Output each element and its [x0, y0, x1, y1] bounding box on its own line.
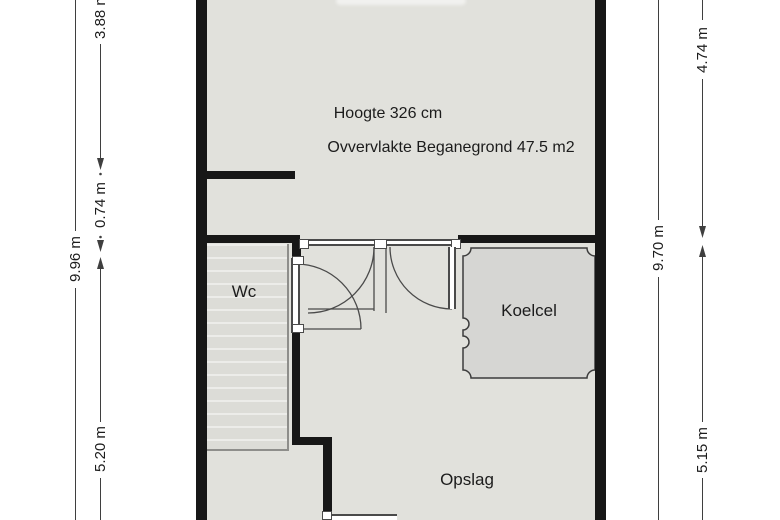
- wc-door-frame: [291, 258, 300, 333]
- wc-door-post-top: [292, 256, 304, 265]
- dimension-label-left-bottom: 5.20 m: [93, 421, 109, 477]
- exterior-wall-right: [595, 0, 606, 520]
- dimension-label-right-bottom: 5.15 m: [695, 422, 711, 478]
- door-post-left: [299, 239, 309, 249]
- interior-wall-main-right: [458, 235, 595, 243]
- floor-plan: Hoogte 326 cm Ovvervlakte Beganegrond 47…: [0, 0, 780, 520]
- door-post-middle: [374, 239, 387, 249]
- main-room-height-note: Hoogte 326 cm: [334, 105, 443, 123]
- wc-label: Wc: [232, 282, 257, 302]
- bottom-door-frame: [331, 514, 397, 520]
- french-doors-swing: [308, 247, 452, 313]
- interior-wall-lower: [323, 445, 332, 515]
- dimension-label-left-middle: 0.74 m: [93, 177, 109, 233]
- wc-door-post-bottom: [292, 324, 304, 333]
- interior-wall-stub: [207, 171, 295, 179]
- interior-wall-main-left: [207, 235, 300, 243]
- interior-wall-wc-right: [292, 333, 300, 440]
- interior-wall-jog: [292, 437, 332, 445]
- french-door-right-leaf: [448, 247, 456, 309]
- dimension-label-left-top: 3.88 m: [93, 0, 109, 44]
- bottom-door-post: [322, 511, 332, 520]
- koelcel-label: Koelcel: [501, 301, 557, 321]
- dimension-label-left-total: 9.96 m: [68, 231, 84, 287]
- exterior-wall-left: [196, 0, 207, 520]
- dimension-label-right-total: 9.70 m: [651, 220, 667, 276]
- opslag-label: Opslag: [440, 470, 494, 490]
- main-room-area-note: Ovvervlakte Beganegrond 47.5 m2: [327, 139, 574, 157]
- dimension-label-right-top: 4.74 m: [695, 22, 711, 78]
- french-door-frame: [300, 239, 460, 246]
